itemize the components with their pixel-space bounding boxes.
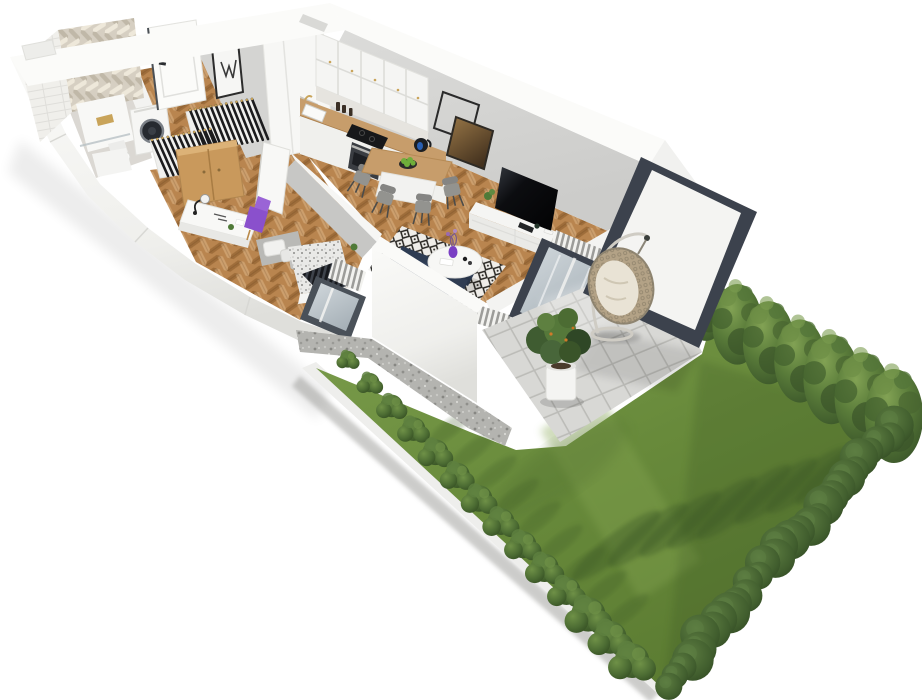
hanger-hook xyxy=(194,108,196,110)
hanger-hook xyxy=(251,98,253,100)
hanger-hook xyxy=(246,99,248,101)
cup xyxy=(463,257,467,261)
hanger-hook xyxy=(161,137,163,139)
hanger-hook xyxy=(235,101,237,103)
oak-wardrobe xyxy=(176,140,244,206)
toy xyxy=(228,224,234,230)
hanger-hook xyxy=(177,134,179,136)
hanger-hook xyxy=(188,132,190,134)
hanger-hook xyxy=(215,104,217,106)
hanger-hook xyxy=(198,130,200,132)
cup xyxy=(468,261,472,265)
hanger-hook xyxy=(220,103,222,105)
sill-plant xyxy=(351,244,358,251)
hanger-hook xyxy=(189,109,191,111)
garden-bush xyxy=(356,371,383,393)
hanger-hook xyxy=(172,135,174,137)
hanger-hook xyxy=(199,107,201,109)
hanger-hook xyxy=(167,136,169,138)
hanger-hook xyxy=(204,106,206,108)
hanger-hook xyxy=(230,102,232,104)
hanger-hook xyxy=(204,129,206,131)
hanger-hook xyxy=(210,105,212,107)
hanger-hook xyxy=(193,131,195,133)
hanger-hook xyxy=(241,100,243,102)
hanger-hook xyxy=(225,102,227,104)
hanger-hook xyxy=(156,138,158,140)
hanger-hook xyxy=(151,139,153,141)
hanger-hook xyxy=(209,128,211,130)
hedge-highlight xyxy=(659,676,671,688)
floorplan-3d-render xyxy=(0,0,922,700)
hanger-hook xyxy=(182,133,184,135)
